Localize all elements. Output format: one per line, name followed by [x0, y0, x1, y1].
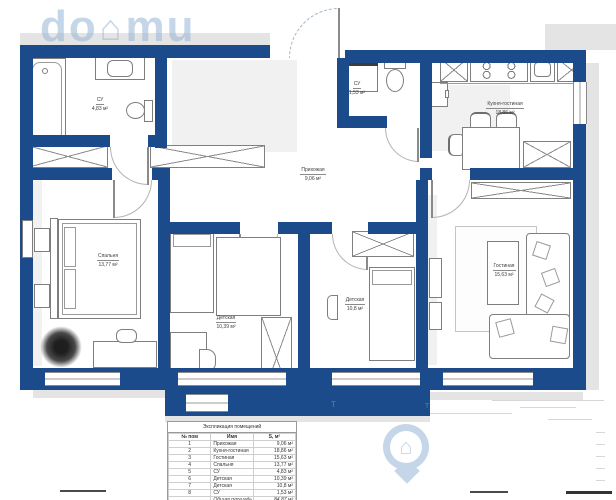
sketch-line: [548, 419, 592, 420]
bed-pillow: [64, 227, 76, 267]
legend-cell: 1: [169, 441, 211, 448]
wardrobe-kids2: [352, 231, 414, 257]
table-total-row: Общая площадь84,87 м²: [169, 497, 296, 500]
wall-bathroom-bottom: [33, 135, 110, 147]
watermark-pin-logo: ⌂: [380, 424, 436, 488]
room-name: Детская: [345, 296, 366, 305]
legend-cell: 18,86 м²: [253, 448, 295, 455]
legend-cell: 4,83 м²: [253, 469, 295, 476]
nightstand: [34, 228, 50, 252]
room-area: 1,53 м²: [334, 89, 380, 97]
door-arc-bedroom: [114, 180, 152, 218]
legend-cell: Гостиная: [211, 455, 253, 462]
table-row: 8СУ1,53 м²: [169, 490, 296, 497]
bathtub-inner: [32, 62, 62, 141]
bathroom-sink: [107, 60, 133, 77]
threshold-window: [186, 394, 228, 412]
door-leaf-living: [431, 180, 433, 218]
legend-cell: Кухня-гостиная: [211, 448, 253, 455]
section-marker: Т: [425, 403, 429, 410]
room-label-wc: СУ 1,53 м²: [334, 80, 380, 97]
window-kids2: [332, 372, 420, 386]
dining-chair: [448, 134, 463, 156]
legend-total-label: Общая площадь: [211, 497, 253, 500]
sketch-line: [420, 413, 512, 414]
legend-cell: 1,53 м²: [253, 490, 295, 497]
legend-total-value: 84,87 м²: [253, 497, 295, 500]
legend-cell: СУ: [211, 469, 253, 476]
shadow-top-right: [545, 24, 616, 50]
scale-bar: [60, 490, 106, 492]
scale-bar: [566, 491, 612, 494]
stool-bedroom: [116, 329, 137, 343]
wall-kitchen-south-a: [420, 168, 432, 180]
room-label-bathroom: СУ 4,83 м²: [77, 96, 123, 113]
table-row: 2Кухня-гостиная18,86 м²: [169, 448, 296, 455]
bathtub-drain: [42, 68, 48, 74]
desk-bedroom: [93, 341, 157, 368]
legend-cell: 6: [169, 476, 211, 483]
legend-cell: СУ: [211, 490, 253, 497]
wall-living-left: [416, 180, 428, 390]
tv-unit: [429, 302, 442, 330]
section-marker: Т: [331, 400, 336, 409]
door-arc-living: [432, 180, 470, 218]
room-label-kitchen: Кухня-гостиная 18,86 м²: [482, 100, 528, 117]
room-label-hallway: Прихожая 9,06 м²: [290, 166, 336, 183]
living-cabinet: [471, 182, 571, 199]
nightstand: [34, 284, 50, 308]
wardrobe-corridor-left: [28, 145, 108, 168]
dining-table: [462, 127, 520, 170]
sketch-tick: [596, 432, 605, 433]
legend-header: Имя: [211, 434, 253, 441]
kitchen-wardrobe: [523, 141, 571, 168]
table-row: 1Прихожая9,06 м²: [169, 441, 296, 448]
legend-cell: 7: [169, 483, 211, 490]
table-row: 5СУ4,83 м²: [169, 469, 296, 476]
toilet-bowl-bathroom: [126, 102, 145, 119]
door-leaf-entrance: [338, 8, 340, 58]
wall-top-right: [345, 50, 586, 63]
shadow-bottom-left: [33, 390, 165, 398]
legend-cell: 15,63 м²: [253, 455, 295, 462]
wall-bedroom-top-a: [20, 168, 112, 180]
legend-cell: [169, 497, 211, 500]
plant: [40, 326, 82, 368]
room-name: Гостиная: [493, 262, 516, 271]
table-row: 7Детская10,8 м²: [169, 483, 296, 490]
window-kitchen: [573, 82, 587, 124]
wardrobe-hallway: [150, 145, 265, 168]
bed-pillow: [173, 234, 211, 247]
kitchen-sink-basin: [534, 62, 551, 77]
pin-house-icon: ⌂: [383, 426, 429, 468]
room-name: Кухня-гостиная: [486, 100, 523, 109]
wall-hall-south-a: [160, 222, 240, 234]
room-area: 10,8 м²: [332, 305, 378, 313]
wall-wc-bottom: [337, 116, 387, 128]
sketch-line: [492, 400, 604, 401]
legend-cell: 9,06 м²: [253, 441, 295, 448]
legend-cell: Детская: [211, 483, 253, 490]
watermark-house-icon: ⌂: [100, 7, 124, 49]
shadow-right: [586, 63, 599, 390]
legend-cell: Прихожая: [211, 441, 253, 448]
door-leaf-bedroom: [113, 180, 115, 218]
legend-cell: Детская: [211, 476, 253, 483]
sketch-tick: [596, 444, 605, 445]
legend-cell: 10,39 м²: [253, 476, 295, 483]
room-name: СУ: [353, 80, 362, 89]
room-area: 18,86 м²: [482, 109, 528, 117]
window-living: [443, 372, 533, 386]
hall-sink-knob: [445, 90, 449, 98]
room-label-kids1: Детская 10,39 м²: [203, 314, 249, 331]
room-label-living: Гостиная 15,63 м²: [481, 262, 527, 279]
legend-cell: 5: [169, 469, 211, 476]
wall-kids-divider: [298, 222, 310, 390]
table-row: 3Гостиная15,63 м²: [169, 455, 296, 462]
sofa-pillow: [550, 326, 569, 345]
table-row: 4Спальня13,77 м²: [169, 462, 296, 469]
bed-pillow: [372, 270, 412, 285]
counter-edge: [440, 83, 586, 84]
wall-left: [20, 45, 33, 390]
legend-table: Экспликация помещений № пом Имя S, м² 1П…: [167, 421, 297, 500]
wall-wc-right: [420, 58, 432, 158]
legend-cell: 8: [169, 490, 211, 497]
bed-headboard: [50, 218, 58, 319]
legend-cell: 4: [169, 462, 211, 469]
floor-plan: do⌂mu ⌂: [0, 0, 616, 500]
room-name: Спальня: [97, 252, 119, 261]
bed-kids1-large: [216, 237, 281, 316]
legend-cell: 13,77 м²: [253, 462, 295, 469]
shadow-hallway: [172, 60, 297, 152]
room-name: Прихожая: [300, 166, 325, 175]
room-area: 10,39 м²: [203, 323, 249, 331]
legend-header: № пом: [169, 434, 211, 441]
wall-kitchen-south-b: [470, 168, 580, 180]
wall-hall-south-c: [310, 222, 332, 234]
sketch-line: [520, 407, 576, 408]
sketch-tick: [596, 480, 605, 481]
room-name: Детская: [216, 314, 237, 323]
legend-header-row: № пом Имя S, м²: [169, 434, 296, 441]
legend-cell: 10,8 м²: [253, 483, 295, 490]
window-bedroom: [45, 372, 120, 386]
legend-cell: 3: [169, 455, 211, 462]
wall-bedroom-right: [158, 168, 170, 390]
scale-bar: [470, 491, 508, 493]
room-area: 9,06 м²: [290, 175, 336, 183]
door-arc-entrance: [289, 8, 339, 58]
wall-bathroom-bottom-stub: [148, 135, 167, 147]
legend-title: Экспликация помещений: [168, 422, 296, 433]
room-name: СУ: [96, 96, 105, 105]
toilet-tank-bathroom: [144, 100, 153, 122]
room-area: 13,77 м²: [85, 261, 131, 269]
sketch-tick: [596, 456, 605, 457]
table-row: 6Детская10,39 м²: [169, 476, 296, 483]
window-kids1: [178, 372, 286, 386]
door-leaf-wc: [417, 128, 419, 162]
room-area: 15,63 м²: [481, 271, 527, 279]
room-label-bedroom: Спальня 13,77 м²: [85, 252, 131, 269]
legend-header: S, м²: [253, 434, 295, 441]
toilet-tank-wc: [384, 62, 406, 69]
sketch-tick: [596, 468, 605, 469]
shadow-bottom-right: [430, 392, 583, 400]
tv-unit: [429, 258, 442, 298]
wall-top-left: [20, 45, 270, 58]
radiator: [22, 220, 33, 258]
room-area: 4,83 м²: [77, 105, 123, 113]
toilet-bowl-wc: [386, 69, 404, 92]
bed-pillow: [64, 269, 76, 309]
door-arc-wc: [385, 128, 419, 162]
room-label-kids2: Детская 10,8 м²: [332, 296, 378, 313]
legend-cell: Спальня: [211, 462, 253, 469]
legend-cell: 2: [169, 448, 211, 455]
